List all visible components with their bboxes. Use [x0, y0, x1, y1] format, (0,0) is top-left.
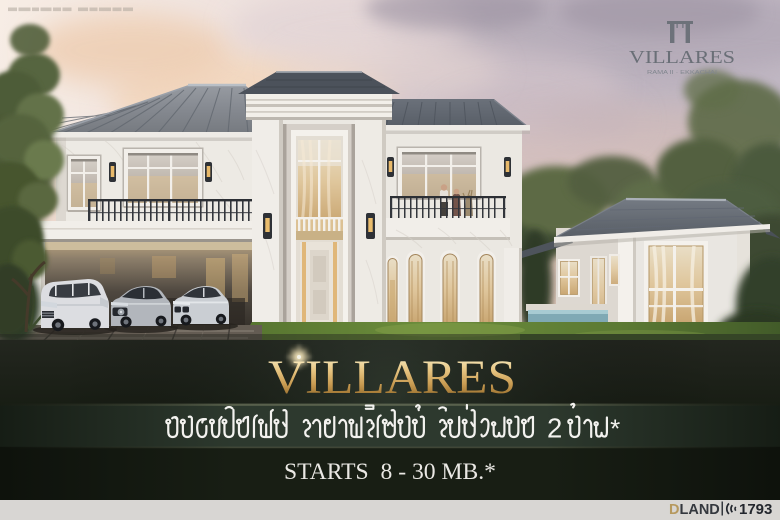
svg-text:RAMA II · EKKACHAI: RAMA II · EKKACHAI — [647, 70, 717, 76]
svg-text:1793: 1793 — [739, 501, 772, 518]
svg-text:STARTS 8 - 30 MB.*: STARTS 8 - 30 MB.* — [284, 459, 496, 484]
svg-text:2: 2 — [547, 413, 562, 444]
svg-text:*: * — [610, 414, 620, 444]
svg-text:VILLARES: VILLARES — [629, 47, 735, 67]
svg-text:DLAND: DLAND — [669, 502, 720, 518]
